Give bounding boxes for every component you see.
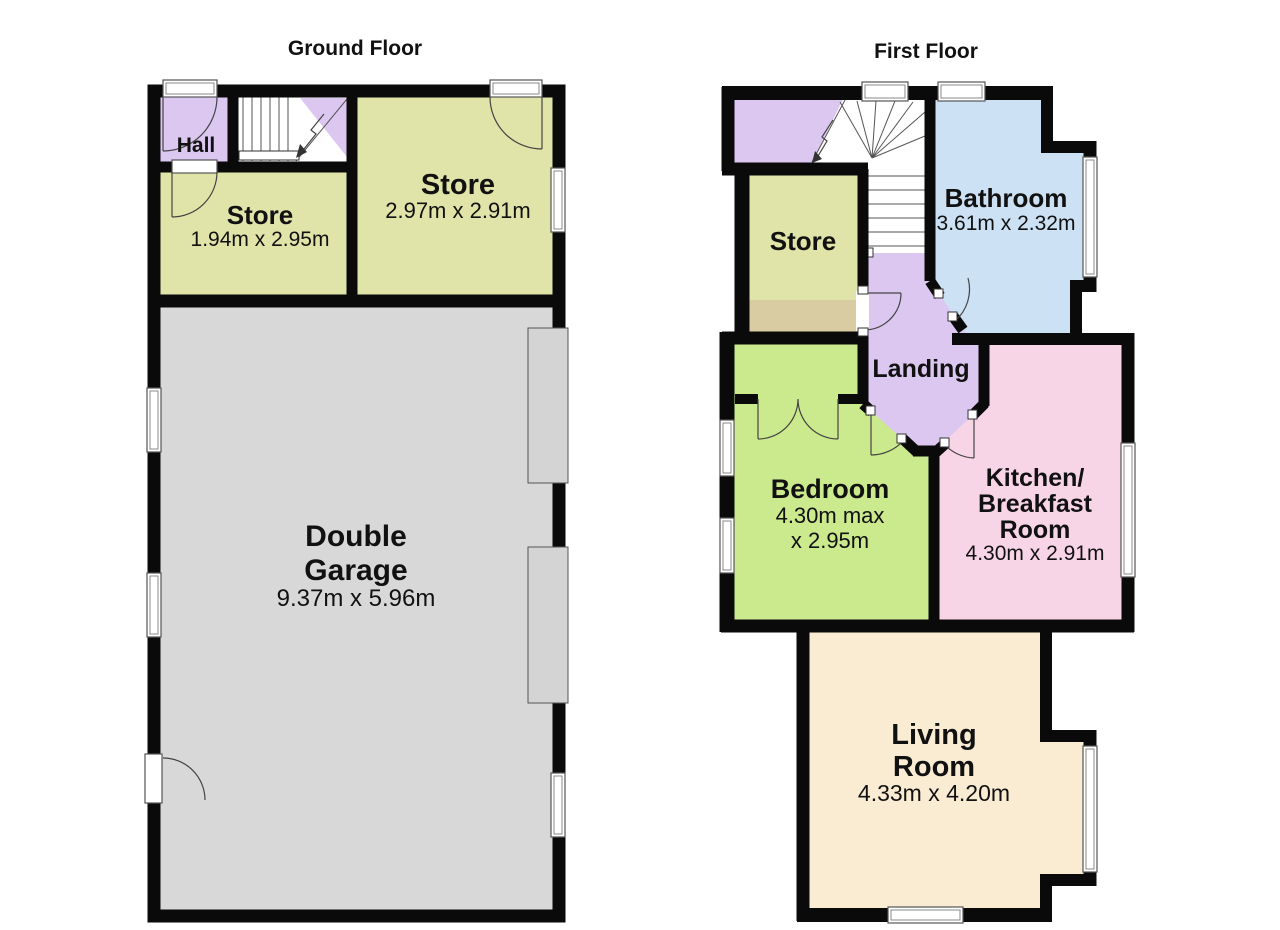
first-floor-title: First Floor	[874, 40, 978, 63]
bedroom-label: Bedroom	[771, 474, 890, 504]
window-bathroom-top	[938, 82, 985, 101]
bathroom-label: Bathroom	[945, 183, 1068, 213]
window-living-bay	[1083, 746, 1097, 872]
store-first-label: Store	[770, 226, 836, 256]
garage-door-upper	[528, 328, 568, 483]
first-floor-plan: First Floor Store Bathroom 3.61m x 2.32m…	[720, 40, 1135, 923]
window-kitchen-right	[1121, 443, 1135, 577]
window-bathroom-bay	[1083, 157, 1097, 277]
ground-floor-plan: Ground Floor Hall Store 1.94m x 2.95m St…	[145, 37, 568, 916]
ground-floor-title: Ground Floor	[288, 37, 422, 60]
window-garage-left-lower	[147, 573, 161, 637]
store-right-label: Store	[421, 169, 495, 201]
living-label-line2: Room	[893, 751, 975, 783]
living-dims: 4.33m x 4.20m	[858, 780, 1010, 806]
store-left-dims: 1.94m x 2.95m	[191, 228, 330, 251]
bathroom-dims: 3.61m x 2.32m	[937, 212, 1076, 235]
window-stairs-top	[862, 82, 908, 101]
window-bedroom-upper	[720, 420, 734, 476]
landing-label: Landing	[872, 355, 969, 383]
kitchen-label-line3: Room	[1000, 516, 1071, 544]
store-left-label: Store	[227, 200, 293, 230]
window-garage-right	[551, 773, 565, 837]
kitchen-label-line1: Kitchen/	[986, 464, 1085, 492]
garage-label-line1: Double	[305, 520, 407, 553]
garage-door-lower	[528, 547, 568, 703]
garage-label-line2: Garage	[304, 554, 407, 587]
living-label-line1: Living	[891, 719, 976, 751]
window-living-bottom	[888, 907, 963, 923]
bedroom-dims-line2: x 2.95m	[791, 528, 869, 553]
floorplan-page: Ground Floor Hall Store 1.94m x 2.95m St…	[0, 0, 1280, 930]
window-store-right	[551, 168, 565, 232]
window-garage-left-upper	[147, 388, 161, 452]
garage-dims: 9.37m x 5.96m	[277, 585, 436, 612]
bedroom-dims-line1: 4.30m max	[776, 503, 885, 528]
floorplan-drawing: Ground Floor Hall Store 1.94m x 2.95m St…	[0, 0, 1280, 930]
window-bedroom-lower	[720, 518, 734, 573]
hall-label: Hall	[177, 134, 216, 157]
stair-bottom-rail	[239, 151, 299, 160]
store-right-dims: 2.97m x 2.91m	[385, 198, 531, 223]
kitchen-label-line2: Breakfast	[978, 490, 1093, 518]
kitchen-dims: 4.30m x 2.91m	[966, 542, 1105, 565]
